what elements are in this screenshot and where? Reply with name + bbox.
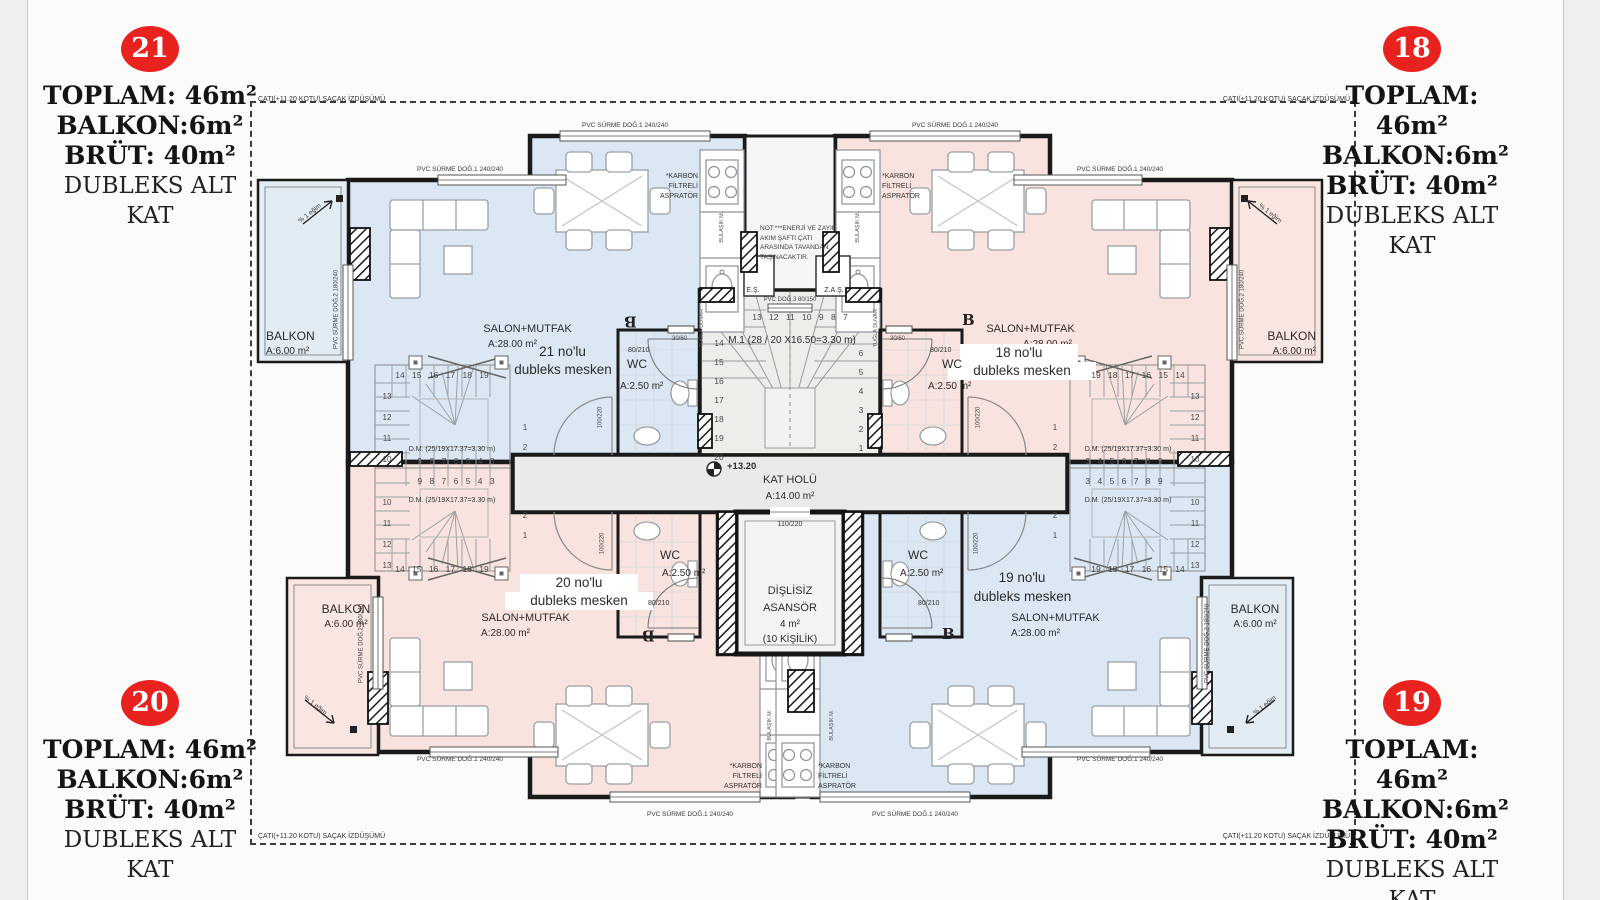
unit-18-toplam: TOPLAM: 46m²	[1322, 81, 1502, 141]
wc-19-entry-label: 100/220	[974, 518, 981, 568]
wc-19-label: WC	[908, 549, 928, 563]
unit-19-kat: DUBLEKS ALT KAT	[1322, 855, 1502, 900]
elevator-capacity-label: (10 KİŞİLİK)	[730, 634, 850, 646]
dm-19-col: 10 11 12 13	[1188, 492, 1202, 576]
wc-18-area: A:2.50 m²	[928, 381, 971, 393]
elevator-area-label: 4 m²	[730, 619, 850, 631]
window-label-b-bay-left: PVC SÜRME DOĞ.1 240/240	[630, 811, 750, 818]
unit-19-balkon: BALKON:6m²	[1322, 795, 1502, 825]
hall-area-label: A:14.00 m²	[720, 491, 860, 503]
wc-21-door-label: 80/210	[628, 347, 649, 355]
sink-20-label: BULAŞIK M.	[767, 700, 773, 750]
wc-18-label: WC	[942, 358, 962, 372]
dm-19-side: 2 1	[1050, 506, 1060, 546]
unit-19-type-label: dubleks mesken	[945, 589, 1100, 605]
dm-21-row-bottom: 9 8 7 6 5 4 3	[398, 457, 514, 467]
dm-19-label: D.M. (25/19X17.37=3.30 m)	[1052, 497, 1204, 505]
unit-20-type-label: dubleks mesken	[505, 592, 653, 610]
central-stair-numbers-top: 13 12 11 10 9 8 7	[738, 313, 862, 323]
section-mark-bl: B	[642, 626, 655, 643]
roof-eave-outline	[250, 101, 1356, 845]
wc-20-entry-label: 100/220	[600, 518, 607, 568]
wc-19-area: A:2.50 m²	[900, 568, 943, 580]
balcony-bl-area: A:6.00 m²	[296, 619, 396, 631]
unit-20-badge: 20	[121, 680, 179, 726]
roof-label-tl: ÇATI(+11.20 KOTU) SAÇAK İZDÜŞÜMÜ	[258, 96, 385, 104]
dm-20-row-bottom: 14 15 16 17 18 19	[390, 565, 494, 575]
shaft-note: NOT:***ENERJİ VE ZAYIF AKIM ŞAFTI ÇATI A…	[760, 224, 836, 262]
unit-21-kat: DUBLEKS ALT KAT	[40, 171, 260, 231]
wc-21-area: A:2.50 m²	[620, 381, 663, 393]
dm-21-side: 1 2	[520, 418, 530, 458]
section-mark-br: B	[942, 626, 955, 643]
dm-21-row-top: 14 15 16 17 18 19	[390, 371, 494, 381]
balcony-tl-label: BALKON	[266, 330, 315, 344]
window-label-t-bay-right: PVC SÜRME DOĞ.1 240/240	[895, 122, 1015, 129]
brick-wall-label-left: TUĞLA DUVAR	[699, 298, 705, 358]
sink-21-label: BULAŞIK M.	[719, 202, 725, 252]
unit-20-toplam: TOPLAM: 46m²	[40, 735, 260, 765]
aspirator-19-label: *KARBON FİLTRELİ ASPRATÖR	[818, 762, 886, 792]
aspirator-20-label: *KARBON FİLTRELİ ASPRATÖR	[694, 762, 762, 792]
wc-18-door-label: 80/210	[930, 347, 951, 355]
wc-20-door-label: 80/210	[648, 600, 669, 608]
wc-21-label: WC	[627, 358, 647, 372]
unit-19-brut: BRÜT: 40m²	[1322, 825, 1502, 855]
window-label-b-right: PVC SÜRME DOĞ.1 240/240	[1060, 756, 1180, 763]
corner-block-20: 20 TOPLAM: 46m² BALKON:6m² BRÜT: 40m² DU…	[40, 680, 260, 885]
dm-18-row-bottom: 3 4 5 6 7 8 9	[1066, 457, 1182, 467]
hall-label: KAT HOLÜ	[720, 474, 860, 487]
dm-21-col: 13 12 11 10	[380, 386, 394, 470]
unit-21-toplam: TOPLAM: 46m²	[40, 81, 260, 111]
dm-18-side: 1 2	[1050, 418, 1060, 458]
dm-20-side: 2 1	[520, 506, 530, 546]
sink-18-label: BULAŞIK M.	[855, 202, 861, 252]
unit-18-room-label: SALON+MUTFAK	[958, 323, 1103, 336]
unit-19-room-label: SALON+MUTFAK	[983, 612, 1128, 625]
unit-20-kat: DUBLEKS ALT KAT	[40, 825, 260, 885]
electric-shaft-label: E.Ş.	[736, 287, 770, 295]
dm-20-row-top: 9 8 7 6 5 4 3	[398, 477, 514, 487]
balcony-tl-area: A:6.00 m²	[266, 346, 309, 358]
central-stair-numbers-right: 6 5 4 3 2 1	[854, 344, 868, 458]
unit-20-balkon: BALKON:6m²	[40, 765, 260, 795]
unit-21-brut: BRÜT: 40m²	[40, 141, 260, 171]
balcony-tr-label: BALKON	[1242, 330, 1316, 344]
wc-18-window-label: 30/60	[890, 336, 905, 343]
dm-20-label: D.M. (25/19X17.37=3.30 m)	[376, 497, 528, 505]
central-stair-numbers-left: 14 15 16 17 18 19 20	[712, 334, 726, 467]
roof-label-bl: ÇATI(+11.20 KOTU) SAÇAK İZDÜŞÜMÜ	[258, 833, 385, 841]
section-mark-tr: B	[962, 312, 975, 329]
unit-18-balkon: BALKON:6m²	[1322, 141, 1502, 171]
wc-18-entry-label: 100/220	[976, 392, 983, 442]
unit-18-type-label: dubleks mesken	[948, 362, 1096, 380]
dm-21-label: D.M. (25/19X17.37=3.30 m)	[376, 446, 528, 454]
unit-18-no-label: 18 no'lu	[960, 344, 1078, 362]
wc-20-label: WC	[660, 549, 680, 563]
weak-current-shaft-label: Z.A.Ş.	[812, 287, 856, 295]
core-window-label: PVC DOĞ.3 80/150	[750, 297, 830, 304]
unit-19-toplam: TOPLAM: 46m²	[1322, 735, 1502, 795]
aspirator-18-label: *KARBON FİLTRELİ ASPRATÖR	[882, 172, 950, 202]
dm-18-row-top: 19 18 17 16 15 14	[1086, 371, 1190, 381]
balcony-br-window-label: PVC SÜRME DOĞ.2 180/240	[1205, 593, 1212, 693]
central-stair-label: M.1 (28 / 20 X16.50=3.30 m)	[712, 335, 872, 347]
corner-block-21: 21 TOPLAM: 46m² BALKON:6m² BRÜT: 40m² DU…	[40, 26, 260, 231]
dm-19-row-bottom: 19 18 17 16 15 14	[1086, 565, 1190, 575]
window-label-b-left: PVC SÜRME DOĞ.1 240/240	[400, 756, 520, 763]
dm-19-row-top: 3 4 5 6 7 8 9	[1066, 477, 1182, 487]
balcony-tr-window-label: PVC SÜRME DOĞ.2 180/240	[1240, 259, 1247, 359]
corner-block-18: 18 TOPLAM: 46m² BALKON:6m² BRÜT: 40m² DU…	[1322, 26, 1502, 261]
dm-18-col: 13 12 11 10	[1188, 386, 1202, 470]
unit-20-area-label: A:28.00 m²	[433, 628, 578, 640]
unit-18-brut: BRÜT: 40m²	[1322, 171, 1502, 201]
balcony-br-label: BALKON	[1205, 603, 1305, 617]
aspirator-21-label: *KARBON FİLTRELİ ASPRATÖR	[630, 172, 698, 202]
unit-19-no-label: 19 no'lu	[962, 570, 1082, 586]
balcony-tr-area: A:6.00 m²	[1242, 346, 1316, 358]
wc-21-entry-label: 100/220	[598, 392, 605, 442]
unit-18-badge: 18	[1383, 26, 1441, 72]
level-label: +13.20	[727, 462, 756, 473]
brick-wall-label-right: TUĞLA DUVAR	[873, 298, 879, 358]
elevator-label-1: DİŞLİSİZ	[730, 585, 850, 598]
elevator-label-2: ASANSÖR	[730, 602, 850, 615]
balcony-tl-window-label: PVC SÜRME DOĞ.2 180/240	[334, 259, 341, 359]
window-label-b-bay-right: PVC SÜRME DOĞ.1 240/240	[855, 811, 975, 818]
wc-19-door-label: 80/210	[918, 600, 939, 608]
wc-21-window-label: 30/60	[672, 336, 687, 343]
unit-19-area-label: A:28.00 m²	[963, 628, 1108, 640]
unit-20-brut: BRÜT: 40m²	[40, 795, 260, 825]
unit-21-type-label: dubleks mesken	[488, 362, 638, 378]
balcony-bl-label: BALKON	[296, 603, 396, 617]
balcony-bl-window-label: PVC SÜRME DOĞ.2 180/240	[359, 593, 366, 693]
elevator-door-label: 110/220	[760, 521, 820, 529]
dm-20-col: 10 11 12 13	[380, 492, 394, 576]
window-label-t-bay-left: PVC SÜRME DOĞ.1 240/240	[565, 122, 685, 129]
unit-19-badge: 19	[1383, 680, 1441, 726]
unit-20-room-label: SALON+MUTFAK	[453, 612, 598, 625]
unit-20-no-label: 20 no'lu	[520, 574, 638, 592]
floor-plan-page: ÇATI(+11.20 KOTU) SAÇAK İZDÜŞÜMÜ ÇATI(+1…	[0, 0, 1600, 900]
unit-21-room-label: SALON+MUTFAK	[455, 323, 600, 336]
sink-19-label: BULAŞIK M.	[829, 700, 835, 750]
unit-21-balkon: BALKON:6m²	[40, 111, 260, 141]
window-label-t-right: PVC SÜRME DOĞ.1 240/240	[1060, 166, 1180, 173]
unit-21-badge: 21	[121, 26, 179, 72]
corner-block-19: 19 TOPLAM: 46m² BALKON:6m² BRÜT: 40m² DU…	[1322, 680, 1502, 900]
unit-18-kat: DUBLEKS ALT KAT	[1322, 201, 1502, 261]
section-mark-tl: B	[624, 312, 637, 329]
window-label-t-left: PVC SÜRME DOĞ.1 240/240	[400, 166, 520, 173]
balcony-br-area: A:6.00 m²	[1205, 619, 1305, 631]
wc-20-area: A:2.50 m²	[662, 568, 705, 580]
unit-21-no-label: 21 no'lu	[505, 344, 620, 360]
dm-18-label: D.M. (25/19X17.37=3.30 m)	[1052, 446, 1204, 454]
